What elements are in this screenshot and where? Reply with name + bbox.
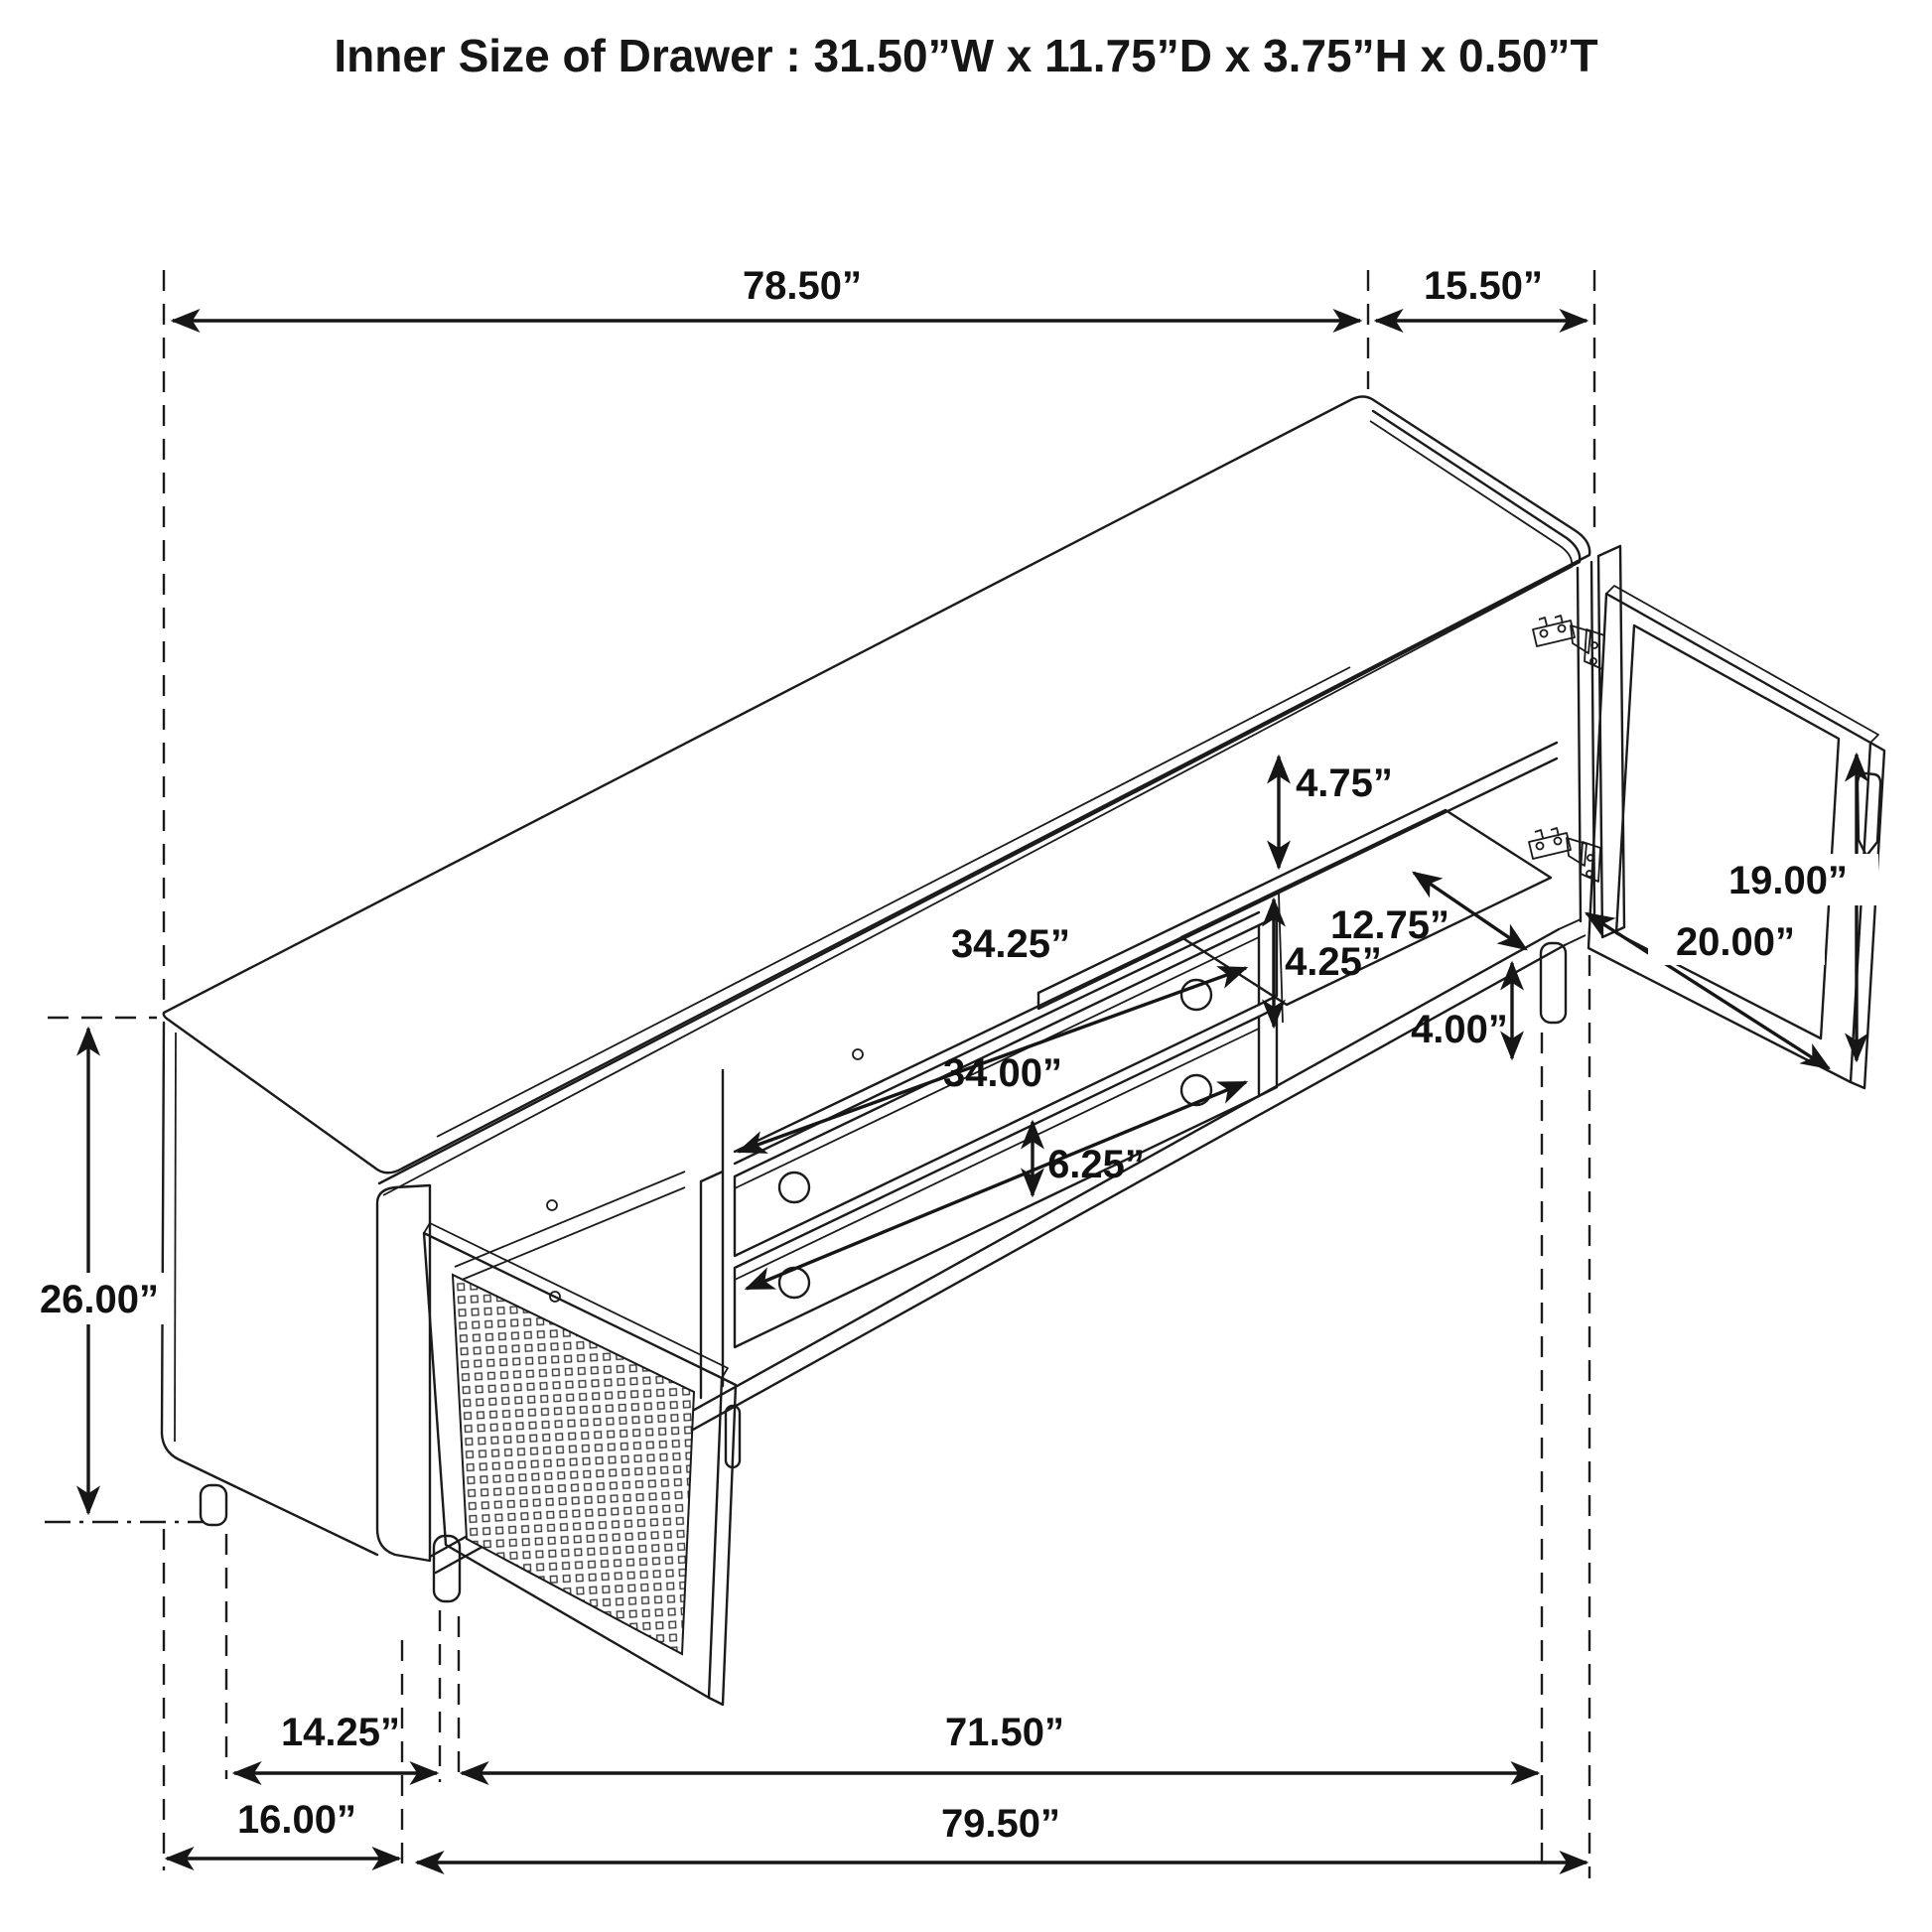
dim-shelf-depth: 12.75” <box>1330 873 1526 949</box>
cane-door-open <box>424 1223 740 1705</box>
dim-drawer-bottom-width: 34.00” <box>747 1051 1246 1289</box>
dim-label-shelf-clearance: 4.75” <box>1296 761 1393 805</box>
dim-label-top-depth: 15.50” <box>1424 264 1543 308</box>
dim-top-depth: 15.50” <box>1376 264 1587 321</box>
dim-leg-inset: 14.25” <box>234 1711 437 1773</box>
dim-label-leg-height: 4.00” <box>1411 1008 1508 1051</box>
dimension-diagram-page: 78.50” 15.50” 26.00” 4.75” 12.75” 19.00” <box>0 0 1932 1932</box>
dim-label-drawer-face: 6.25” <box>1047 1143 1145 1186</box>
projection-guides <box>45 270 1594 1878</box>
knob-icon <box>779 1173 809 1202</box>
dim-label-door-width: 20.00” <box>1676 920 1795 964</box>
dim-label-leg-inset: 14.25” <box>281 1711 400 1754</box>
dim-shelf-clearance: 4.75” <box>1279 757 1393 868</box>
dim-leg-height: 4.00” <box>1411 963 1512 1058</box>
dim-label-drawer-top-width: 34.25” <box>951 922 1070 966</box>
dim-label-end-depth: 16.00” <box>237 1798 356 1842</box>
dim-end-depth: 16.00” <box>167 1798 399 1859</box>
dim-height: 26.00” <box>34 1029 165 1513</box>
shelf-pin-hole <box>547 1200 557 1210</box>
dim-door-width: 20.00” <box>1587 913 1829 1068</box>
hinge-icon <box>1533 616 1604 669</box>
right-door-open <box>1588 586 1884 1088</box>
right-front-frame <box>1578 546 1624 937</box>
dim-body-width: 71.50” <box>462 1711 1538 1773</box>
left-rear-leg <box>201 1485 226 1525</box>
cane-mesh-panel <box>453 1275 694 1654</box>
shelf-pin-hole <box>853 1049 863 1059</box>
knob-icon <box>1181 1075 1211 1105</box>
dim-label-height: 26.00” <box>40 1278 159 1321</box>
dim-door-height: 19.00” <box>1702 755 1878 1060</box>
hinge-icon <box>1529 828 1600 882</box>
dim-label-mid-clearance: 4.25” <box>1285 940 1382 984</box>
dim-label-drawer-bottom-width: 34.00” <box>943 1051 1062 1095</box>
page-title: Inner Size of Drawer : 31.50”W x 11.75”D… <box>334 30 1597 81</box>
dim-top-width: 78.50” <box>173 264 1360 321</box>
dimension-annotations: 78.50” 15.50” 26.00” 4.75” 12.75” 19.00” <box>34 264 1878 1863</box>
dim-label-door-height: 19.00” <box>1728 859 1848 902</box>
dim-label-top-width: 78.50” <box>743 264 862 308</box>
dim-total-width: 79.50” <box>417 1802 1587 1863</box>
diagram-canvas: 78.50” 15.50” 26.00” 4.75” 12.75” 19.00” <box>0 0 1932 1932</box>
dim-drawer-face: 6.25” <box>1033 1122 1145 1195</box>
left-end-panel <box>162 1023 460 1601</box>
dim-label-body-width: 71.50” <box>945 1711 1064 1754</box>
dim-label-total-width: 79.50” <box>941 1802 1060 1846</box>
